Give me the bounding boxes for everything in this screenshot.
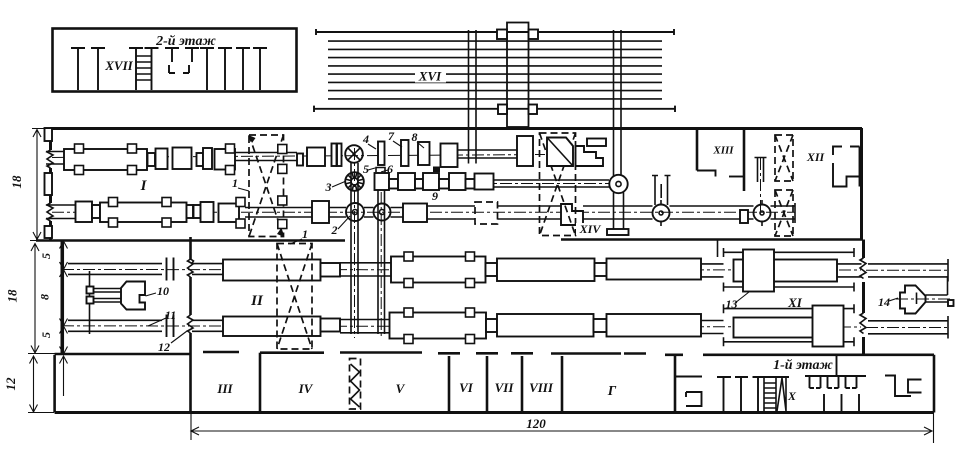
svg-text:XI: XI (787, 295, 803, 310)
svg-text:VIII: VIII (529, 380, 554, 395)
svg-text:5: 5 (39, 332, 53, 338)
svg-text:X: X (787, 389, 797, 403)
svg-text:8: 8 (412, 130, 418, 144)
svg-text:Г: Г (607, 384, 617, 399)
svg-text:4: 4 (362, 132, 369, 146)
svg-text:3: 3 (325, 180, 332, 194)
svg-text:I: I (140, 178, 148, 194)
svg-text:XVI: XVI (418, 69, 442, 84)
svg-text:XIV: XIV (579, 222, 602, 236)
svg-text:9: 9 (432, 189, 438, 203)
svg-text:VI: VI (459, 380, 474, 395)
svg-text:III: III (216, 381, 233, 396)
svg-text:2: 2 (331, 223, 338, 237)
svg-text:12: 12 (3, 377, 18, 391)
svg-text:V: V (396, 381, 406, 396)
svg-text:10: 10 (157, 284, 169, 298)
svg-text:XII: XII (806, 150, 826, 164)
svg-text:5: 5 (363, 162, 369, 176)
svg-text:12: 12 (158, 340, 170, 354)
svg-text:14: 14 (878, 295, 890, 309)
svg-text:8: 8 (38, 294, 52, 300)
svg-text:7: 7 (388, 129, 395, 143)
svg-text:IV: IV (298, 381, 314, 396)
svg-text:11: 11 (165, 308, 176, 322)
svg-text:VII: VII (495, 380, 515, 395)
svg-text:5: 5 (39, 253, 53, 259)
svg-text:XVII: XVII (104, 58, 133, 73)
svg-text:18: 18 (9, 175, 24, 189)
svg-text:1-й этаж: 1-й этаж (773, 358, 833, 373)
svg-text:18: 18 (5, 289, 20, 303)
svg-text:1: 1 (302, 227, 308, 241)
svg-text:120: 120 (526, 416, 546, 431)
svg-text:2-й этаж: 2-й этаж (155, 34, 216, 49)
svg-text:XIII: XIII (712, 145, 734, 157)
svg-text:1: 1 (232, 176, 238, 190)
svg-text:II: II (250, 293, 264, 309)
